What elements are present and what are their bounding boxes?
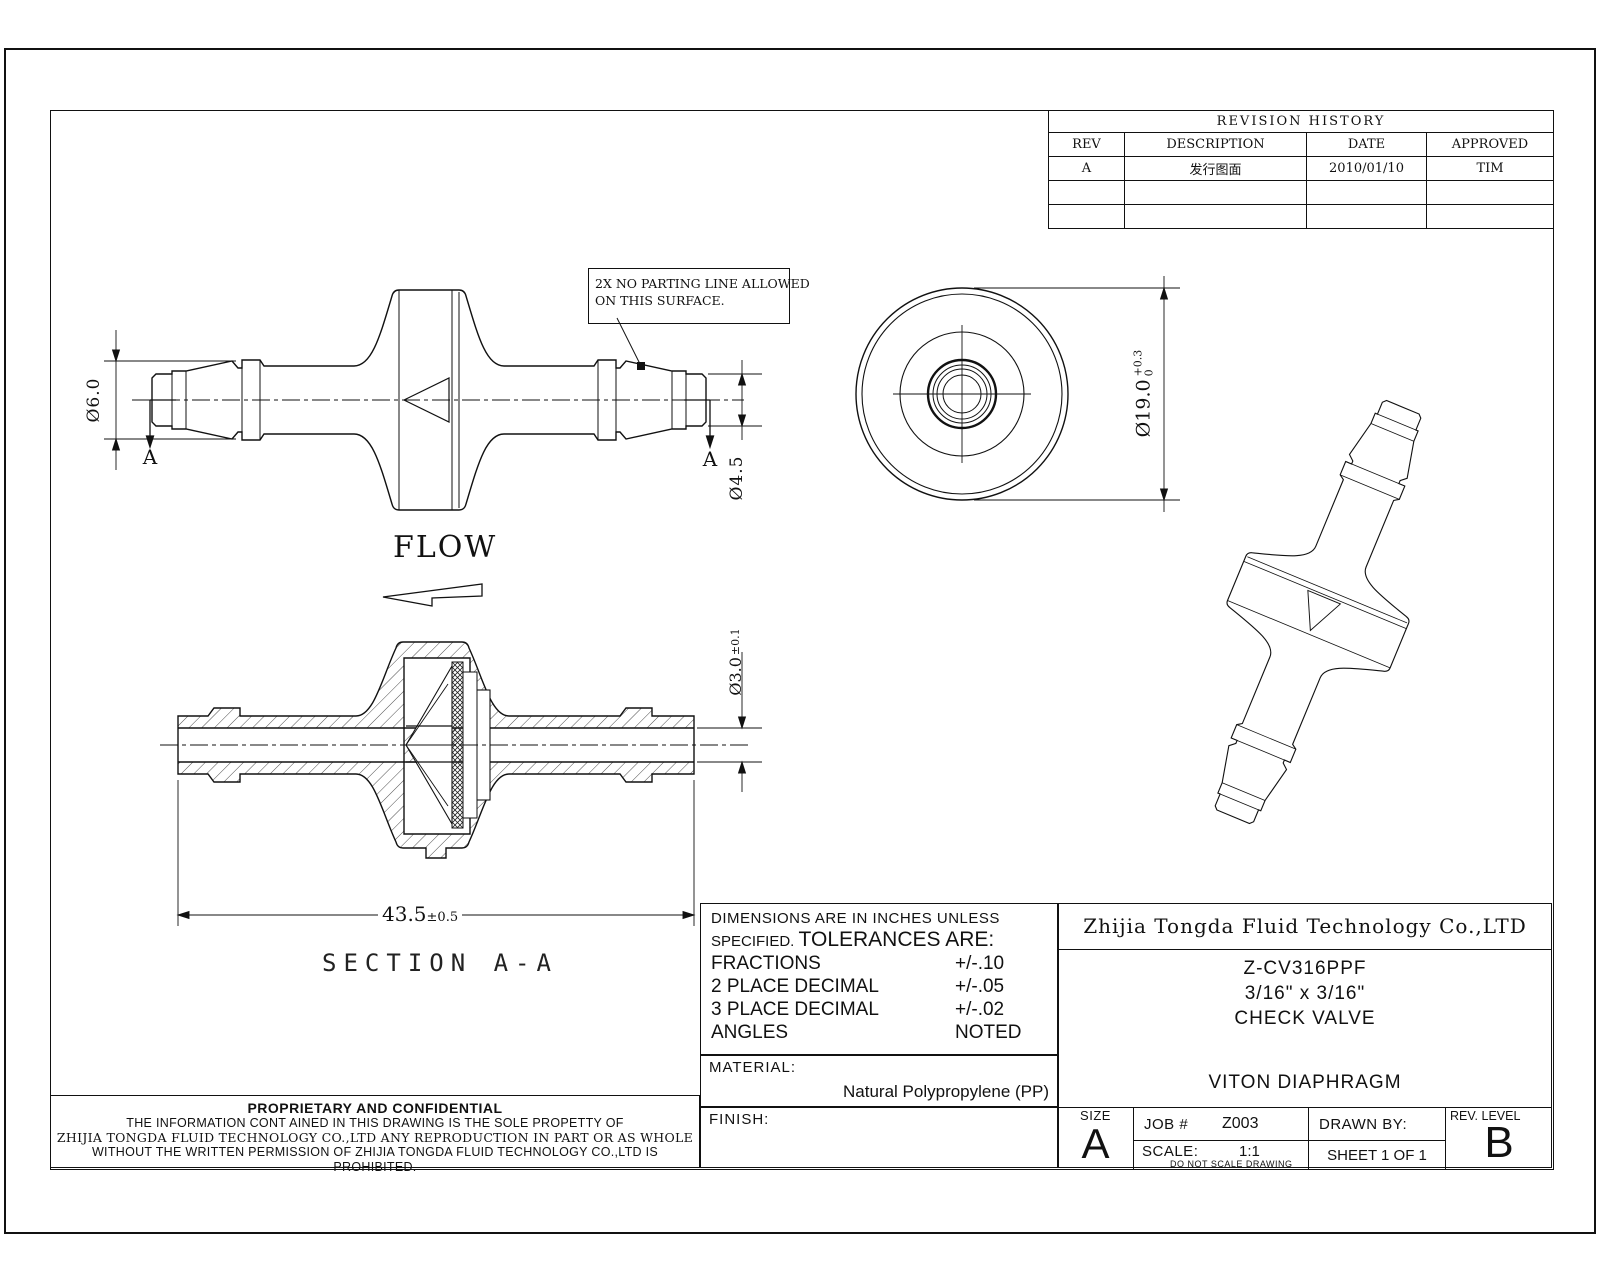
tolerance-row: 3 PLACE DECIMAL +/-.02	[711, 998, 1047, 1021]
tolerance-row-value: NOTED	[955, 1021, 1047, 1044]
tolerance-row-label: FRACTIONS	[711, 952, 821, 975]
length-tolerance: ±0.5	[427, 910, 459, 925]
revision-history-table: REVISION HISTORY REV DESCRIPTION DATE AP…	[1048, 110, 1554, 229]
rev-level-cell: REV. LEVEL B	[1445, 1108, 1552, 1169]
approved-cell: TIM	[1426, 156, 1553, 180]
tolerance-row: FRACTIONS +/-.10	[711, 952, 1047, 975]
drawn-by-cell: DRAWN BY:	[1308, 1108, 1445, 1140]
approved-col-header: APPROVED	[1426, 132, 1553, 156]
tolerance-row-value: +/-.02	[955, 998, 1047, 1021]
rev-cell: A	[1049, 156, 1124, 180]
tolerance-specified: SPECIFIED.	[711, 933, 794, 950]
tolerance-row-label: ANGLES	[711, 1021, 788, 1044]
dim-label-length: 43.5±0.5	[378, 902, 462, 926]
part-number: Z-CV316PPF	[1058, 958, 1552, 980]
part-name: CHECK VALVE	[1058, 1008, 1552, 1030]
cut-letter-right: A	[698, 448, 722, 470]
proprietary-line3: WITHOUT THE WRITTEN PERMISSION OF ZHIJIA…	[51, 1145, 699, 1174]
dia19-value: Ø19.0	[1132, 379, 1154, 437]
no-scale-note: DO NOT SCALE DRAWING	[1170, 1159, 1293, 1169]
flow-arrow	[383, 584, 482, 606]
drawing-sheet: REVISION HISTORY REV DESCRIPTION DATE AP…	[0, 0, 1600, 1280]
job-value: Z003	[1222, 1115, 1258, 1133]
proprietary-line2: ZHIJIA TONGDA FLUID TECHNOLOGY CO.,LTD A…	[51, 1131, 699, 1146]
tolerance-are-label: TOLERANCES ARE:	[799, 928, 995, 951]
rev-cell	[1049, 204, 1124, 228]
flow-label: FLOW	[393, 530, 497, 565]
approved-cell	[1426, 180, 1553, 204]
approved-cell	[1426, 204, 1553, 228]
length-value: 43.5	[382, 902, 427, 926]
material-block: MATERIAL: Natural Polypropylene (PP)	[700, 1055, 1058, 1107]
dia3-value: Ø3.0	[726, 657, 745, 696]
sheet-cell: SHEET 1 OF 1	[1308, 1140, 1445, 1169]
dia3-tolerance: ±0.1	[729, 628, 742, 655]
section-label: SECTION A-A	[320, 948, 560, 978]
proprietary-block: PROPRIETARY AND CONFIDENTIAL THE INFORMA…	[50, 1095, 700, 1168]
dia19-tol-lower: 0	[1143, 350, 1154, 377]
tolerance-line2: SPECIFIED. TOLERANCES ARE:	[711, 928, 1047, 952]
date-cell	[1306, 204, 1426, 228]
end-view-valve	[856, 288, 1068, 500]
tolerance-row: 2 PLACE DECIMAL +/-.05	[711, 975, 1047, 998]
size-value: A	[1058, 1123, 1133, 1165]
title-block-bottom-grid: SIZE A JOB # Z003 SCALE: 1:1 DO NOT SCAL…	[1058, 1107, 1552, 1168]
description-col-header: DESCRIPTION	[1124, 132, 1306, 156]
tolerance-block: DIMENSIONS ARE IN INCHES UNLESS SPECIFIE…	[700, 903, 1058, 1055]
scale-value: 1:1	[1239, 1143, 1260, 1160]
tolerance-row-value: +/-.05	[955, 975, 1047, 998]
proprietary-line1: THE INFORMATION CONT AINED IN THIS DRAWI…	[51, 1116, 699, 1131]
job-cell: JOB # Z003	[1133, 1108, 1308, 1140]
scale-cell: SCALE: 1:1 DO NOT SCALE DRAWING	[1133, 1140, 1308, 1169]
material-value: Natural Polypropylene (PP)	[709, 1082, 1049, 1102]
rev-cell	[1049, 180, 1124, 204]
cut-letter-left: A	[138, 446, 162, 468]
note-line-1: 2X NO PARTING LINE ALLOWED	[595, 275, 785, 292]
date-cell	[1306, 180, 1426, 204]
note-line-2: ON THIS SURFACE.	[595, 292, 785, 309]
size-cell: SIZE A	[1058, 1108, 1133, 1169]
company-name: Zhijia Tongda Fluid Technology Co.,LTD	[1058, 903, 1552, 950]
dim-label-dia45: Ø4.5	[727, 438, 747, 518]
scale-label: SCALE:	[1142, 1143, 1198, 1160]
tolerance-line1: DIMENSIONS ARE IN INCHES UNLESS	[711, 910, 1047, 927]
description-cell	[1124, 180, 1306, 204]
finish-label: FINISH:	[709, 1111, 1049, 1128]
date-col-header: DATE	[1306, 132, 1426, 156]
tolerance-row-value: +/-.10	[955, 952, 1047, 975]
dia19-tolerance: +0.3 0	[1132, 350, 1154, 377]
dim-label-dia3: Ø3.0 ±0.1	[725, 607, 745, 717]
revision-history-title: REVISION HISTORY	[1049, 111, 1553, 132]
material-label: MATERIAL:	[709, 1059, 1049, 1076]
description-cell	[1124, 204, 1306, 228]
date-cell: 2010/01/10	[1306, 156, 1426, 180]
part-subtitle: VITON DIAPHRAGM	[1058, 1072, 1552, 1094]
drawn-by-label: DRAWN BY:	[1319, 1116, 1407, 1133]
tolerance-row-label: 2 PLACE DECIMAL	[711, 975, 879, 998]
parting-line-note: 2X NO PARTING LINE ALLOWED ON THIS SURFA…	[588, 268, 790, 324]
isometric-view-valve	[1152, 374, 1484, 851]
section-cut-line-right	[684, 400, 714, 447]
rev-level-label: REV. LEVEL	[1450, 1109, 1520, 1123]
rev-level-value: B	[1446, 1122, 1552, 1164]
part-size-spec: 3/16" x 3/16"	[1058, 983, 1552, 1005]
dia19-tol-upper: +0.3	[1132, 350, 1143, 377]
dim-label-dia19: Ø19.0 +0.3 0	[1130, 334, 1157, 454]
tolerance-row-label: 3 PLACE DECIMAL	[711, 998, 879, 1021]
tolerance-row: ANGLES NOTED	[711, 1021, 1047, 1044]
job-label: JOB #	[1144, 1116, 1188, 1133]
rev-col-header: REV	[1049, 132, 1124, 156]
finish-block: FINISH:	[700, 1107, 1058, 1168]
section-view-valve	[160, 642, 752, 858]
dim-label-dia6: Ø6.0	[84, 360, 104, 440]
description-cell: 发行图面	[1124, 156, 1306, 180]
proprietary-title: PROPRIETARY AND CONFIDENTIAL	[51, 1100, 699, 1116]
